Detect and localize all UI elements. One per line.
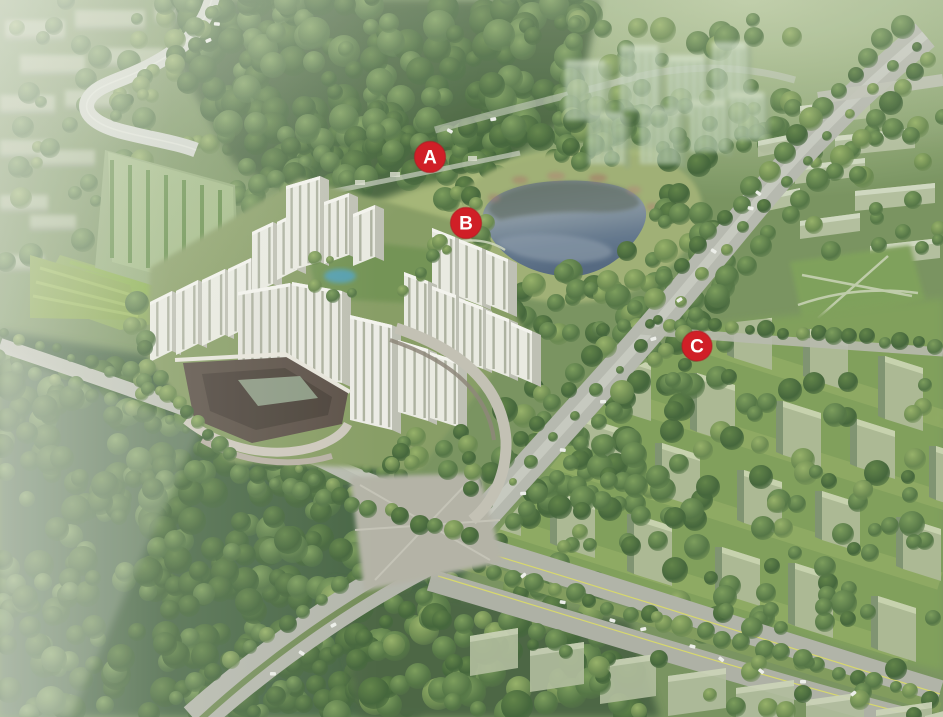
svg-text:C: C bbox=[690, 337, 704, 358]
svg-text:B: B bbox=[459, 214, 473, 235]
svg-text:A: A bbox=[423, 148, 437, 169]
